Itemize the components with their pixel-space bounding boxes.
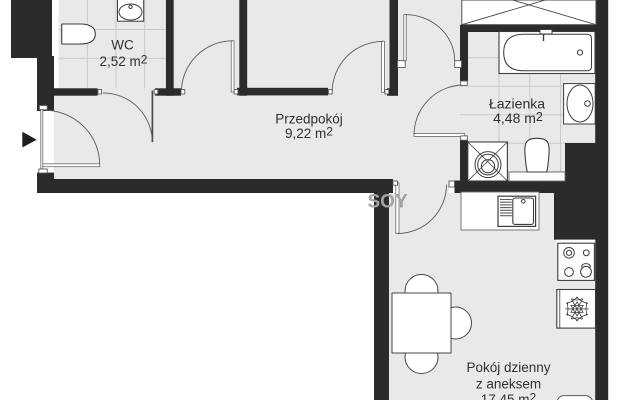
svg-text:z aneksem: z aneksem — [476, 377, 541, 392]
svg-text:17,45 m2: 17,45 m2 — [481, 391, 537, 400]
svg-text:4,48 m2: 4,48 m2 — [493, 110, 543, 126]
svg-text:9,22 m2: 9,22 m2 — [285, 125, 333, 141]
svg-text:WC: WC — [111, 38, 134, 53]
svg-text:Pokój dzienny: Pokój dzienny — [466, 360, 550, 375]
svg-text:SOY: SOY — [368, 192, 408, 213]
svg-text:2,52 m2: 2,52 m2 — [100, 53, 148, 69]
